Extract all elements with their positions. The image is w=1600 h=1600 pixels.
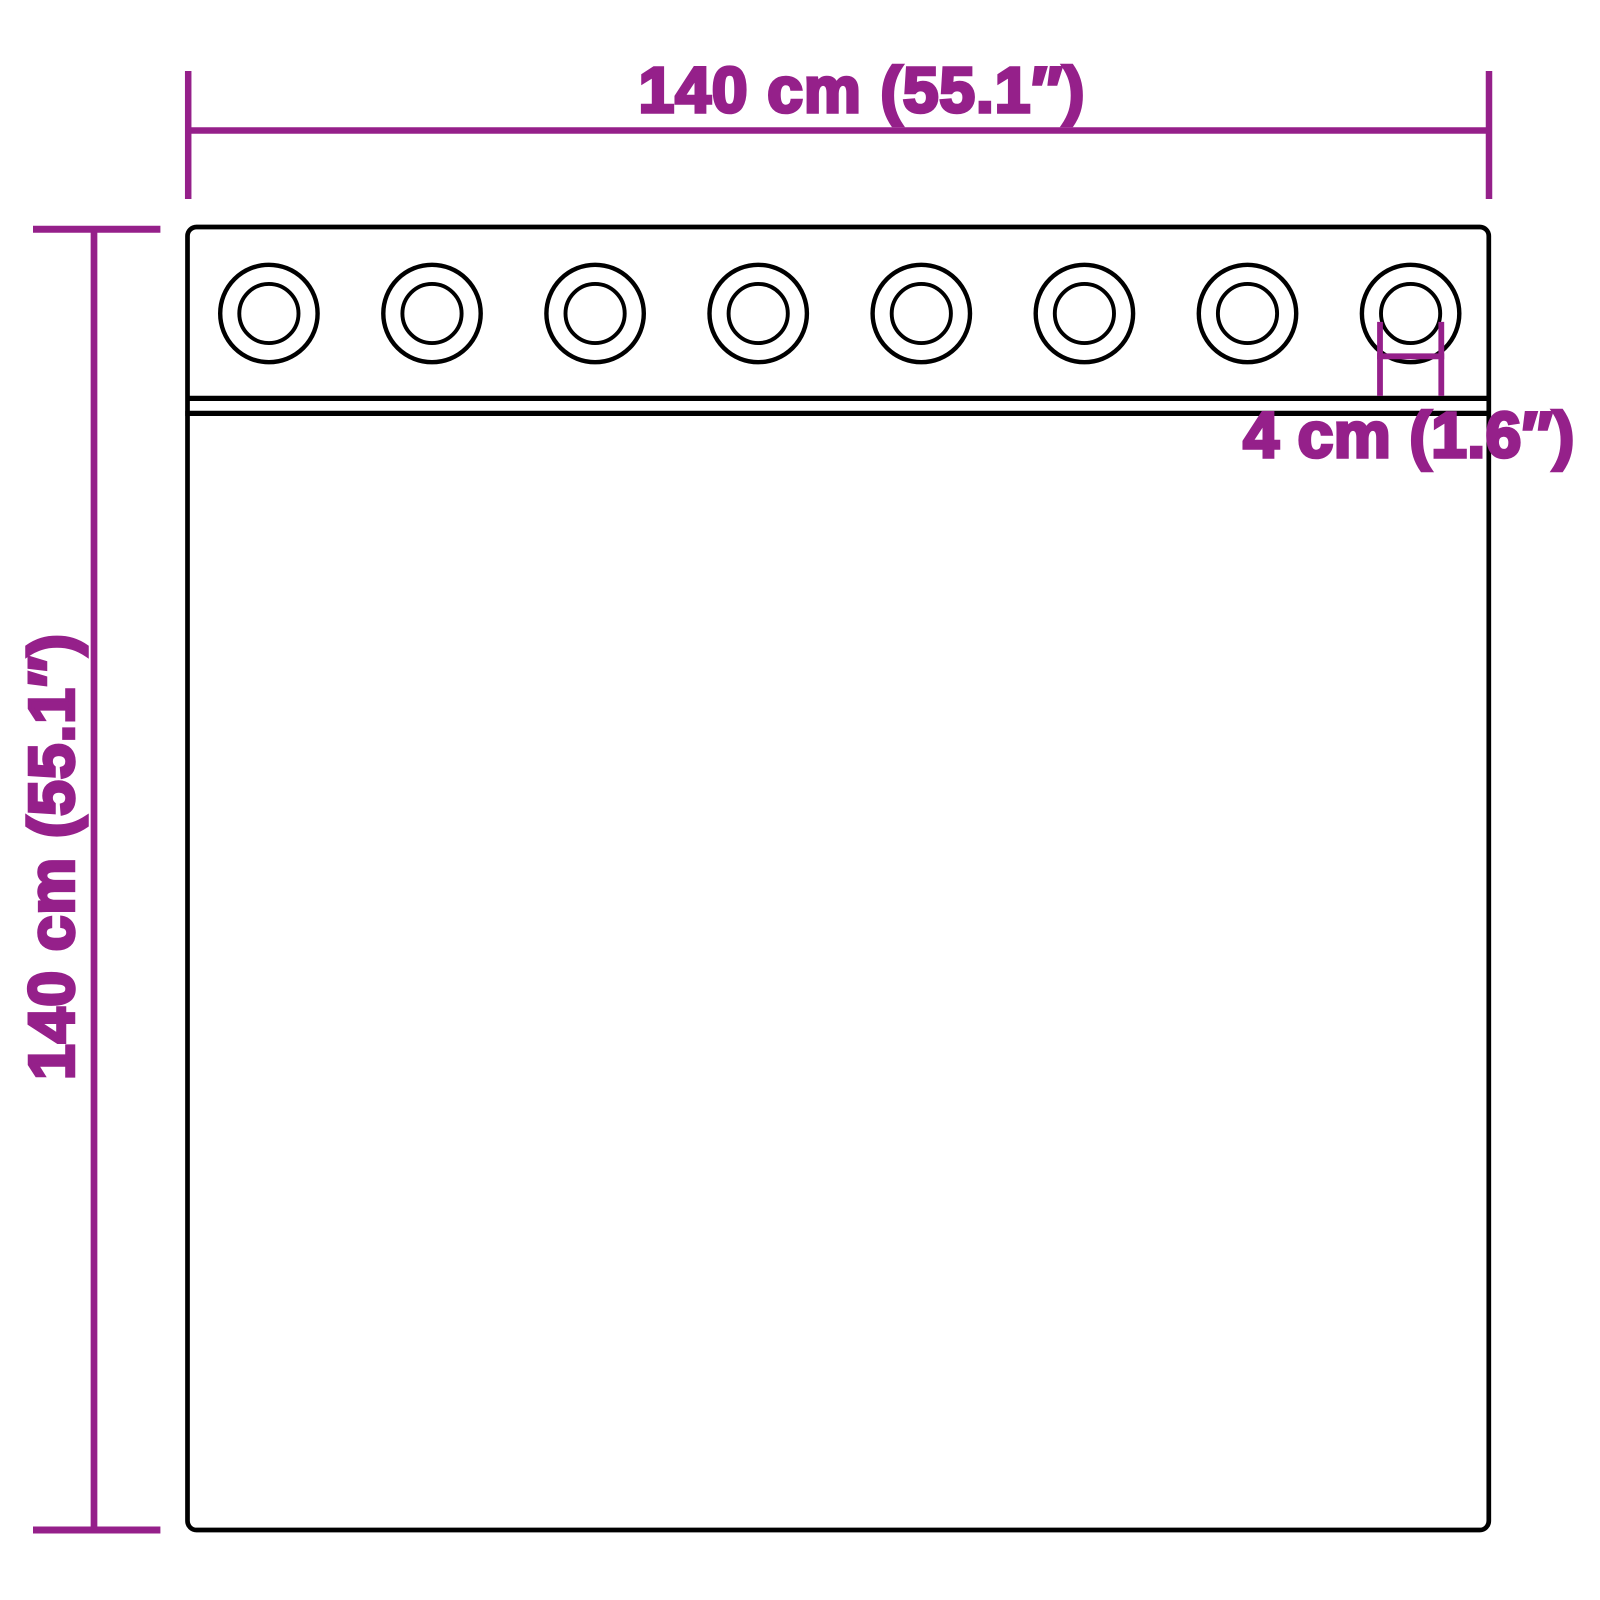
svg-text:4 cm (1.6″): 4 cm (1.6″) [1243, 399, 1574, 471]
svg-text:140 cm (55.1″): 140 cm (55.1″) [639, 54, 1086, 126]
svg-text:140 cm (55.1″): 140 cm (55.1″) [16, 633, 88, 1080]
